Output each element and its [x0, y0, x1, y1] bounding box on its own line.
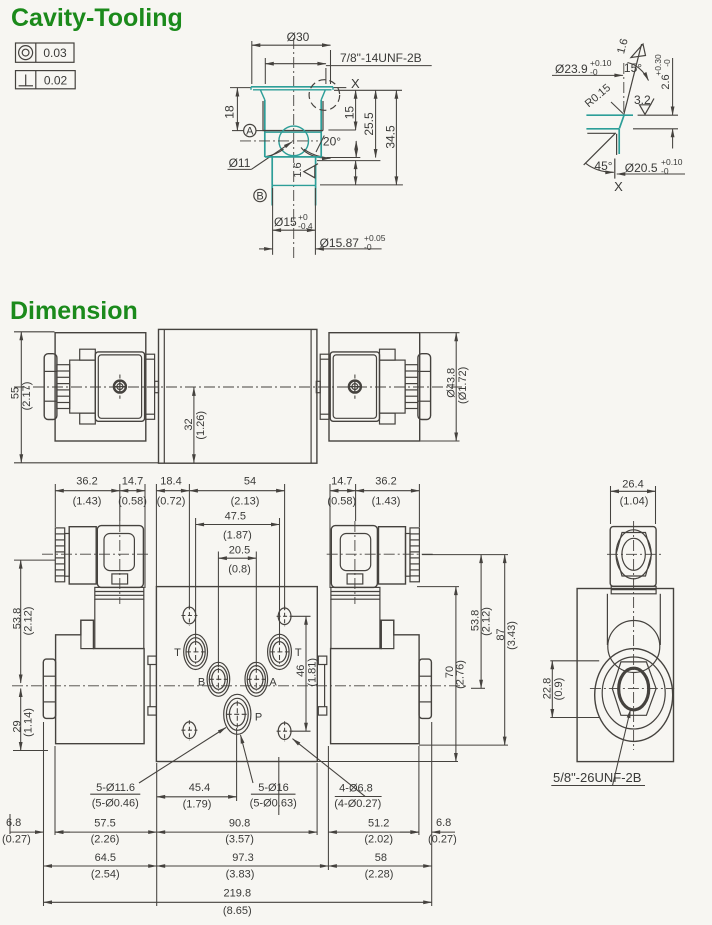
svg-text:(3.57): (3.57): [225, 834, 254, 846]
svg-text:(2.54): (2.54): [91, 869, 120, 881]
svg-text:36.2: 36.2: [375, 476, 396, 488]
svg-text:(0.58): (0.58): [118, 496, 147, 508]
svg-text:(0.9): (0.9): [553, 678, 565, 701]
svg-text:(2.26): (2.26): [91, 834, 120, 846]
svg-text:46: 46: [295, 665, 307, 677]
svg-text:58: 58: [375, 852, 387, 864]
svg-text:15: 15: [343, 106, 357, 120]
svg-text:90.8: 90.8: [229, 818, 250, 830]
svg-text:5-Ø11.6: 5-Ø11.6: [96, 782, 135, 794]
svg-text:(4-Ø0.27): (4-Ø0.27): [334, 798, 381, 810]
svg-text:7/8"-14UNF-2B: 7/8"-14UNF-2B: [340, 51, 422, 65]
svg-text:T: T: [295, 647, 302, 659]
svg-text:26.4: 26.4: [622, 479, 643, 491]
svg-text:(0.58): (0.58): [327, 496, 356, 508]
svg-text:(2.12): (2.12): [23, 607, 35, 636]
svg-text:Ø23.9: Ø23.9: [555, 62, 588, 76]
svg-text:20.5: 20.5: [229, 545, 250, 557]
svg-text:47.5: 47.5: [225, 511, 246, 523]
svg-text:X: X: [351, 76, 360, 91]
svg-text:(2.12): (2.12): [481, 607, 493, 636]
svg-text:(0.27): (0.27): [2, 834, 31, 846]
svg-text:(1.43): (1.43): [73, 496, 102, 508]
svg-text:6.8: 6.8: [6, 817, 21, 829]
svg-text:-0: -0: [364, 242, 372, 252]
svg-text:(5-Ø0.46): (5-Ø0.46): [92, 798, 139, 810]
svg-text:45.4: 45.4: [189, 782, 210, 794]
svg-text:97.3: 97.3: [232, 852, 253, 864]
svg-text:Ø15: Ø15: [274, 215, 297, 229]
svg-text:(2.02): (2.02): [364, 834, 393, 846]
svg-text:219.8: 219.8: [224, 888, 252, 900]
svg-text:(1.87): (1.87): [223, 530, 252, 542]
svg-text:Ø43.8: Ø43.8: [445, 368, 457, 398]
svg-text:(2.13): (2.13): [231, 496, 260, 508]
svg-text:(2.76): (2.76): [454, 660, 466, 689]
svg-text:64.5: 64.5: [95, 852, 116, 864]
svg-text:-0.4: -0.4: [298, 221, 313, 231]
svg-text:(2.17): (2.17): [21, 382, 33, 411]
svg-text:1.6: 1.6: [292, 162, 304, 177]
svg-text:(0.27): (0.27): [428, 834, 457, 846]
svg-text:18.4: 18.4: [160, 476, 181, 488]
svg-text:18: 18: [223, 105, 237, 119]
svg-text:T: T: [174, 647, 181, 659]
svg-text:(1.14): (1.14): [23, 708, 35, 737]
svg-text:Cavity-Tooling: Cavity-Tooling: [11, 4, 183, 32]
svg-text:14.7: 14.7: [122, 476, 143, 488]
svg-text:(1.26): (1.26): [195, 411, 207, 440]
svg-text:32: 32: [183, 418, 195, 430]
svg-text:Ø15.87: Ø15.87: [320, 236, 360, 250]
svg-text:Dimension: Dimension: [10, 297, 138, 325]
svg-text:Ø30: Ø30: [287, 30, 310, 44]
svg-text:(1.04): (1.04): [620, 496, 649, 508]
svg-text:(8.65): (8.65): [223, 905, 252, 917]
svg-text:X: X: [614, 179, 623, 194]
svg-text:(Ø1.72): (Ø1.72): [457, 367, 469, 404]
svg-text:0.03: 0.03: [43, 46, 67, 60]
svg-text:51.2: 51.2: [368, 818, 389, 830]
svg-text:20°: 20°: [323, 135, 341, 149]
svg-text:6.8: 6.8: [436, 817, 451, 829]
svg-text:P: P: [255, 712, 262, 724]
svg-text:22.8: 22.8: [542, 678, 554, 699]
svg-text:(1.79): (1.79): [183, 799, 212, 811]
svg-text:(0.8): (0.8): [228, 563, 251, 575]
svg-text:(5-Ø0.63): (5-Ø0.63): [250, 798, 297, 810]
svg-text:-0: -0: [662, 59, 672, 67]
svg-text:5/8"-26UNF-2B: 5/8"-26UNF-2B: [553, 770, 641, 785]
svg-text:36.2: 36.2: [76, 476, 97, 488]
svg-text:(0.72): (0.72): [157, 496, 186, 508]
svg-text:B: B: [256, 191, 263, 203]
svg-text:34.5: 34.5: [384, 125, 398, 149]
svg-text:Ø11: Ø11: [229, 156, 251, 170]
svg-text:5-Ø16: 5-Ø16: [258, 782, 289, 794]
svg-text:(3.43): (3.43): [506, 621, 518, 650]
svg-text:57.5: 57.5: [94, 818, 115, 830]
svg-text:55: 55: [10, 387, 22, 399]
svg-text:(3.83): (3.83): [226, 869, 255, 881]
svg-text:45°: 45°: [594, 159, 612, 173]
svg-text:(2.28): (2.28): [365, 869, 394, 881]
svg-text:A: A: [246, 126, 254, 138]
svg-text:0.02: 0.02: [44, 73, 68, 87]
svg-text:14.7: 14.7: [331, 476, 352, 488]
svg-text:54: 54: [244, 476, 256, 488]
svg-text:Ø20.5: Ø20.5: [625, 161, 658, 175]
svg-text:B: B: [198, 677, 205, 689]
svg-text:(1.81): (1.81): [306, 658, 318, 687]
svg-text:(1.43): (1.43): [372, 496, 401, 508]
svg-text:25.5: 25.5: [362, 112, 376, 136]
svg-text:A: A: [269, 677, 277, 689]
